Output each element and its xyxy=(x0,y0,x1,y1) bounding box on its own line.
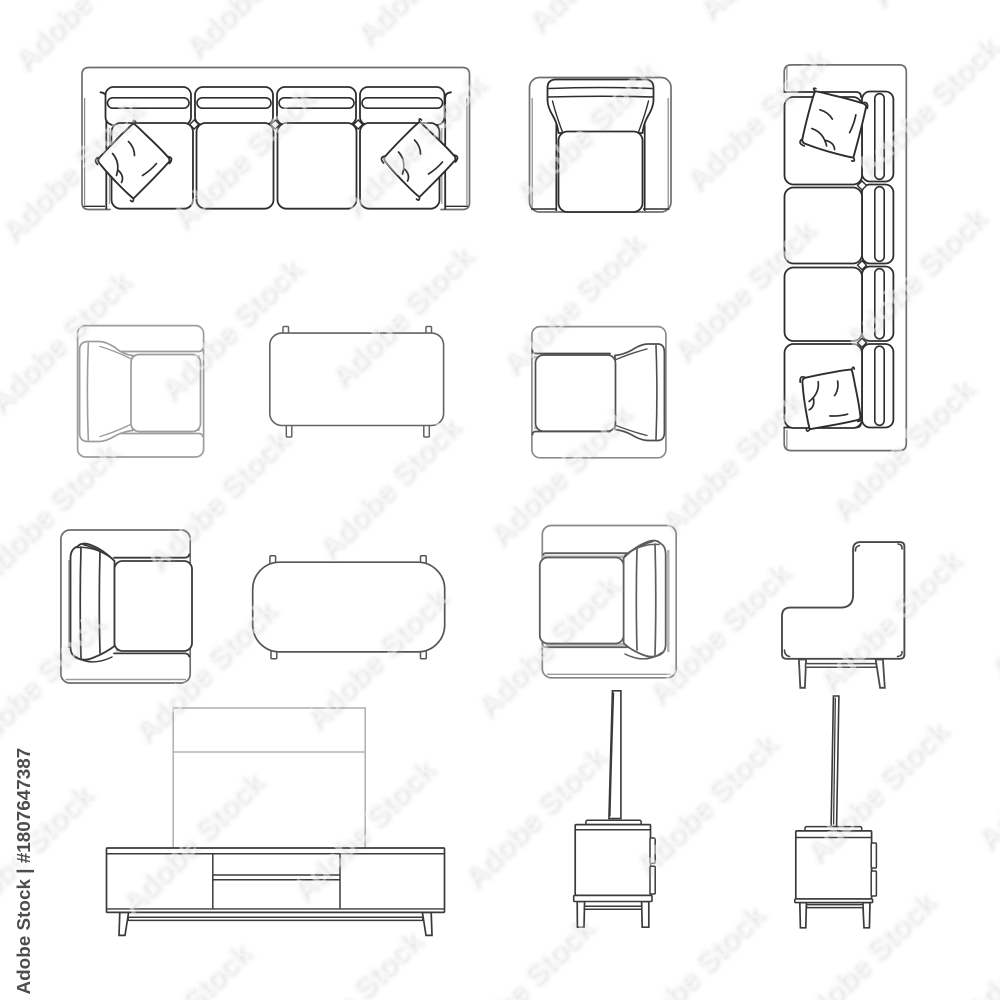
svg-text:Adobe Stock | #1807647387: Adobe Stock | #1807647387 xyxy=(14,748,35,995)
